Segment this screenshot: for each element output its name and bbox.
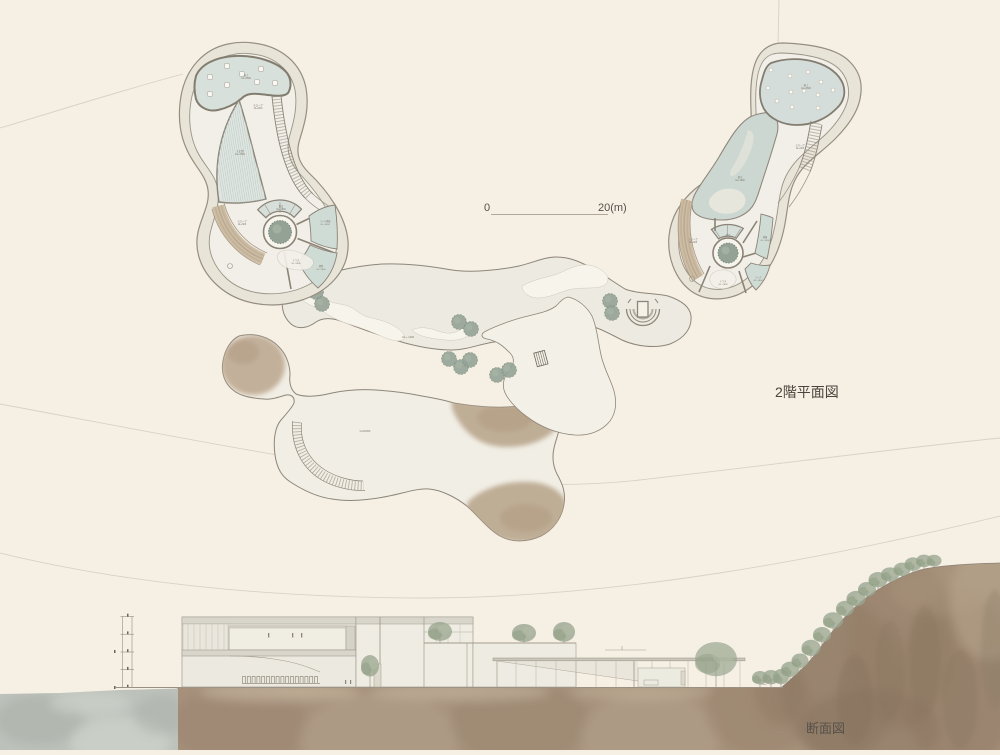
svg-text:2階平面図: 2階平面図: [775, 384, 839, 400]
svg-text:スロープGL+900: スロープGL+900: [688, 237, 698, 244]
svg-text:スロープGL+800: スロープGL+800: [253, 103, 263, 110]
svg-text:断面図: 断面図: [806, 721, 845, 736]
svg-text:0: 0: [484, 202, 490, 214]
svg-text:コーチ施設GL+1800: コーチ施設GL+1800: [320, 219, 332, 226]
svg-text:20(m): 20(m): [598, 202, 627, 214]
svg-text:スロープGL+900: スロープGL+900: [237, 219, 247, 226]
svg-text:GL + 1200: GL + 1200: [402, 335, 415, 339]
svg-text:GL±0000: GL±0000: [360, 429, 371, 433]
svg-text:スロープGL+800: スロープGL+800: [795, 143, 805, 150]
